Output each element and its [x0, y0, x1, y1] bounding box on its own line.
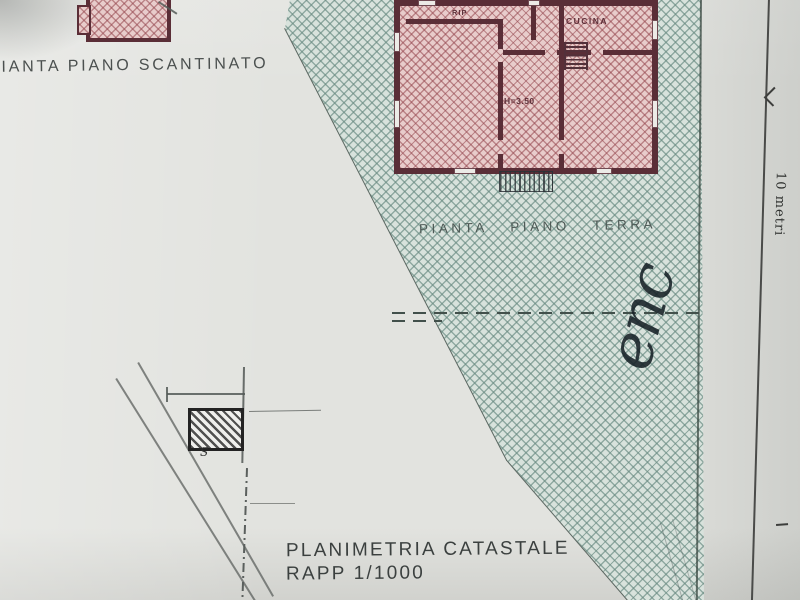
window-opening: [652, 20, 658, 40]
wall-segment: [603, 50, 652, 55]
parcel-boundary-dashdot: [241, 468, 247, 600]
basement-floor-plan: [77, 0, 177, 46]
wall-segment: [503, 50, 545, 55]
basement-plan-body: [86, 0, 171, 42]
window-opening: [596, 168, 612, 174]
dimension-line: [167, 393, 245, 395]
wall-segment: [498, 19, 503, 49]
scanned-cadastral-document: PIANTA PIANO SCANTINATO RIP CUCINA H=3.5…: [0, 0, 800, 600]
wall-segment: [406, 19, 503, 24]
staircase-symbol: [564, 42, 588, 70]
scale-bar-label: 10 metri: [771, 172, 788, 237]
building-footprint: [188, 408, 244, 451]
scale-bar-line: [751, 0, 770, 600]
entry-steps-symbol: [499, 171, 553, 192]
cadastral-title-line1: PLANIMETRIA CATASTALE: [286, 538, 570, 562]
window-opening: [418, 0, 436, 6]
wall-segment: [559, 154, 564, 174]
window-opening: [454, 168, 476, 174]
scale-bar-tick: [776, 523, 788, 525]
cadastral-title-line2: RAPP 1/1000: [286, 562, 425, 585]
window-opening: [394, 32, 400, 52]
boundary-stub-line: [249, 410, 321, 413]
ground-floor-plan: RIP CUCINA H=3.50: [394, 0, 658, 174]
boundary-stub-line: [250, 503, 295, 504]
room-label-storage: RIP: [452, 8, 468, 17]
wall-segment: [498, 62, 503, 140]
basement-plan-annex: [77, 5, 91, 35]
window-opening: [652, 100, 658, 128]
window-opening: [394, 100, 400, 128]
parcel-dashed-boundary-stub: [392, 320, 442, 322]
basement-plan-title: PIANTA PIANO SCANTINATO: [0, 55, 269, 77]
dimension-end-tick: [166, 387, 168, 402]
room-label-height: H=3.50: [504, 96, 535, 106]
window-opening: [528, 0, 540, 6]
room-label-kitchen: CUCINA: [566, 16, 608, 26]
building-footprint-label: S: [200, 445, 208, 459]
wall-segment: [531, 6, 536, 40]
road-edge-line: [138, 362, 274, 597]
